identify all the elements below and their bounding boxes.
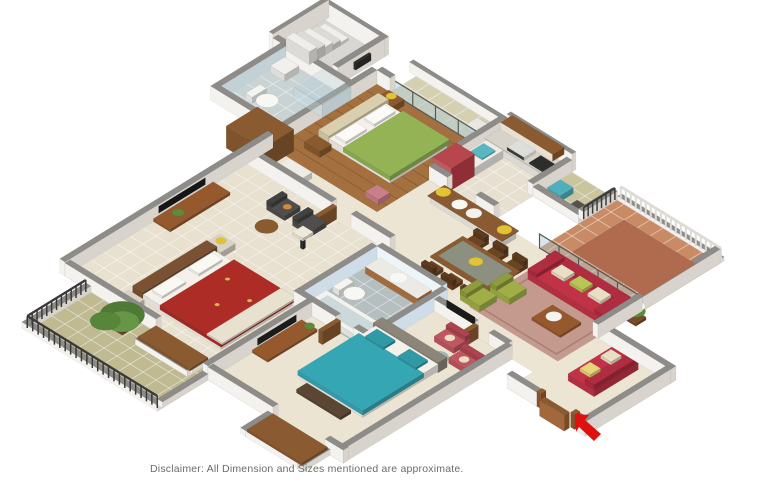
coffee-table-tray: [546, 311, 562, 321]
floorplan-stage: Disclaimer: All Dimension and Sizes ment…: [0, 0, 780, 490]
sideboard-flowers: [497, 225, 512, 234]
duvet-gold-dot: [215, 303, 220, 306]
chair-pillow-orange: [283, 204, 292, 210]
sideboard-plates: [466, 208, 482, 218]
master-side-table: [255, 219, 278, 233]
shelf-plant: [304, 323, 315, 330]
duvet-gold-dot: [225, 277, 230, 280]
armchair-pillow-cream: [459, 356, 470, 363]
floorplan-svg: [0, 0, 780, 490]
nightstand-flowers: [216, 238, 227, 245]
dining-flowers: [469, 257, 483, 266]
duvet-gold-dot: [247, 299, 252, 302]
sideboard-plates: [451, 199, 467, 209]
armchair-pillow-cream: [444, 335, 455, 342]
disclaimer-text: Disclaimer: All Dimension and Sizes ment…: [150, 463, 464, 475]
bath-toilet: [343, 287, 365, 300]
nightstand-flowers: [386, 93, 397, 100]
terrace-plant: [90, 312, 121, 331]
console-plant: [172, 209, 185, 217]
bath-sink: [389, 272, 407, 283]
toilet-bowl: [256, 94, 278, 108]
sideboard-flowers: [436, 187, 451, 196]
